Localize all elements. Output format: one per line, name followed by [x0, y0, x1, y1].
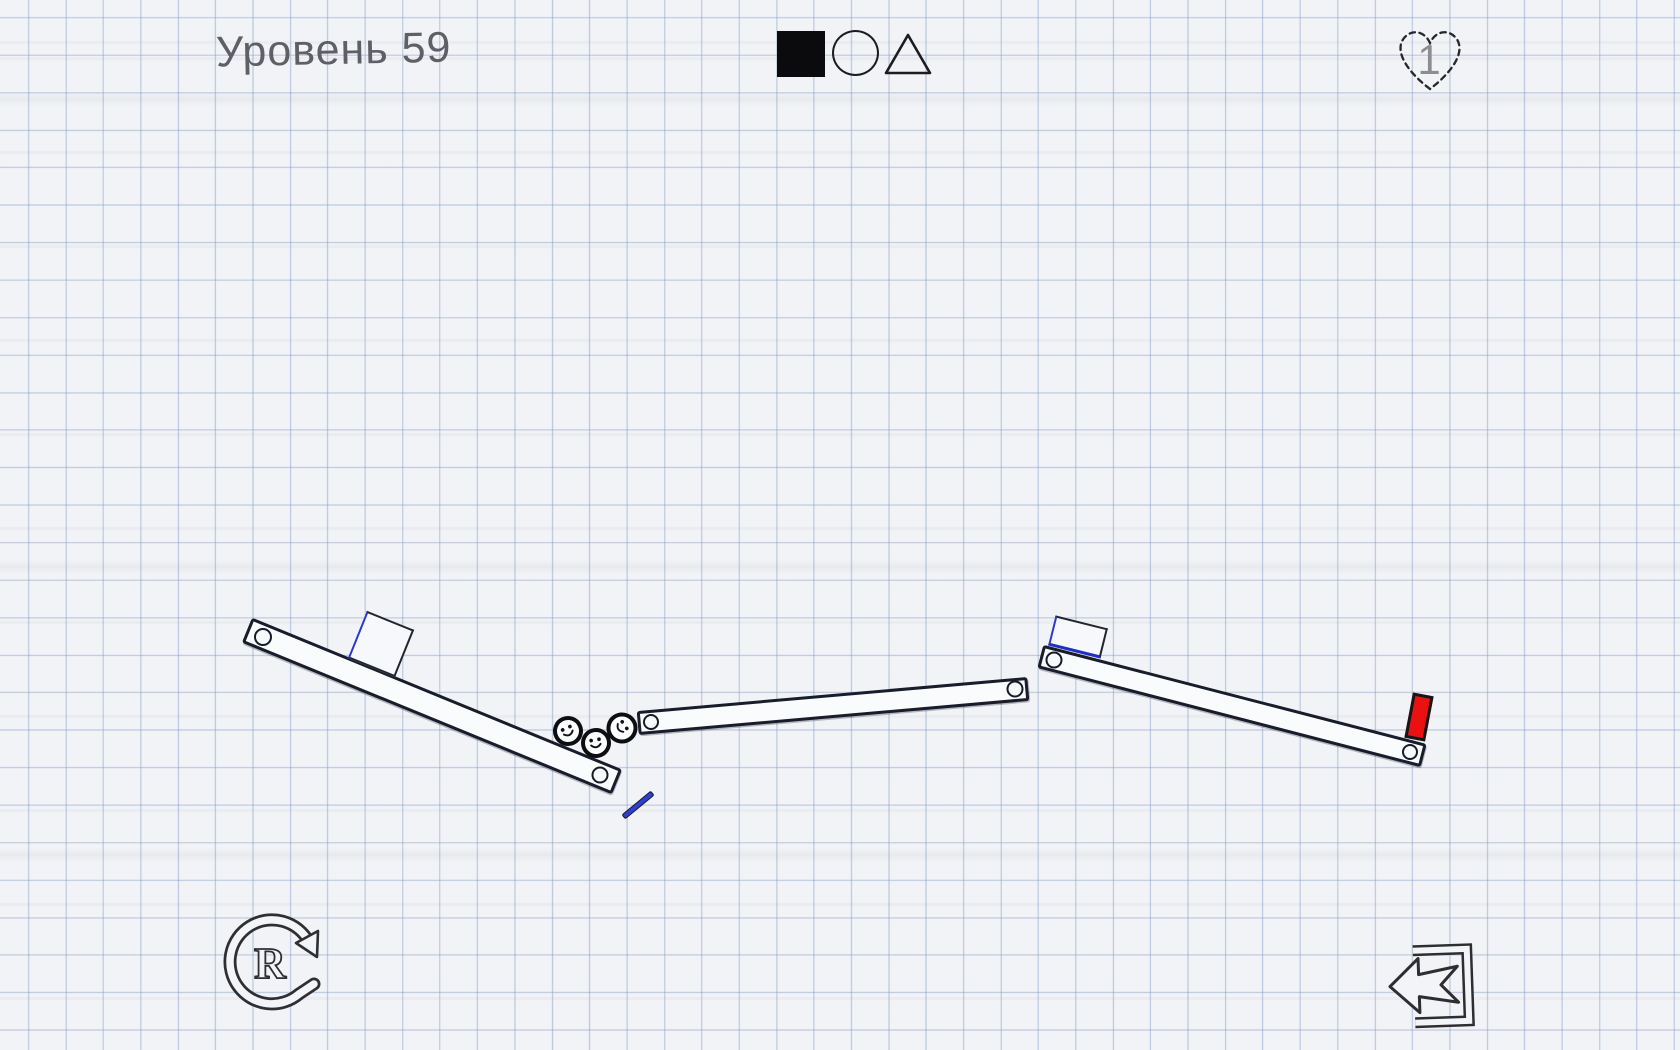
hinge-pin [254, 628, 272, 646]
restart-button[interactable]: R [208, 898, 336, 1020]
red-block [1404, 692, 1433, 741]
level-title: Уровень 59 [216, 24, 452, 78]
drawn-stick [621, 791, 654, 820]
square-tool-icon[interactable] [777, 31, 825, 77]
plank-middle [636, 677, 1029, 735]
lives-count: 1 [1417, 36, 1440, 83]
paper-shading [0, 560, 1680, 574]
exit-button[interactable] [1384, 936, 1488, 1036]
plank-right [1037, 645, 1426, 767]
hinge-pin [1007, 681, 1024, 698]
plank-left [241, 618, 621, 795]
heart-icon: 1 [1388, 16, 1472, 100]
restart-letter: R [254, 939, 287, 988]
triangle-tool-icon[interactable] [883, 32, 933, 81]
lives-indicator: 1 [1388, 16, 1472, 100]
game-canvas[interactable]: Уровень 59 1 R [0, 0, 1680, 1050]
hinge-pin [592, 767, 609, 784]
circle-tool-icon[interactable] [832, 30, 879, 76]
hinge-pin [643, 714, 659, 730]
restart-arrow-icon: R [208, 898, 336, 1020]
paper-shading [0, 848, 1680, 862]
hinge-pin [1402, 744, 1418, 760]
exit-door-arrow-icon [1382, 934, 1489, 1038]
hinge-pin [1046, 652, 1063, 669]
